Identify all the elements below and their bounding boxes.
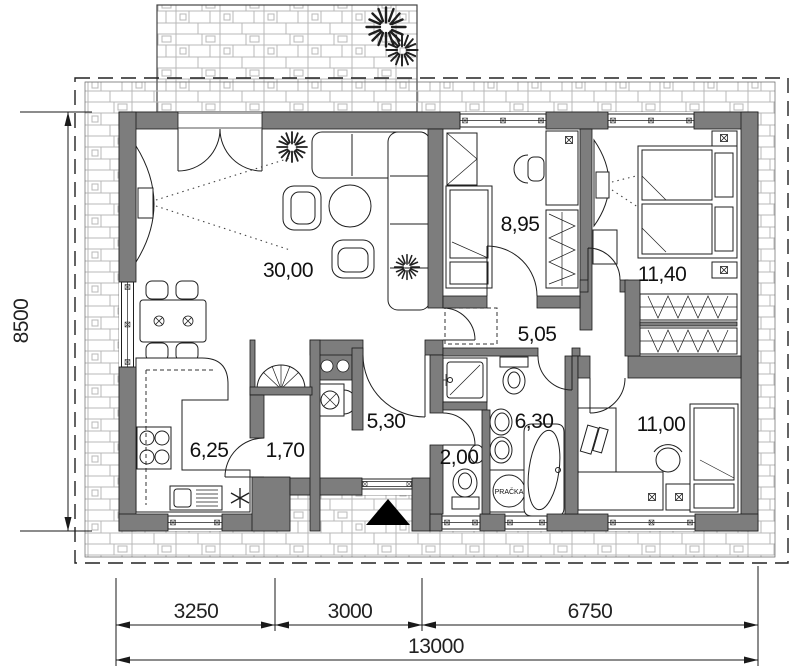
chair — [176, 281, 198, 299]
room-area-label-hallway: 5,05 — [518, 323, 557, 346]
bathtub — [524, 424, 564, 516]
room-area-label-entrance-hall: 5,30 — [367, 410, 406, 433]
dim-width-seg-1: 3250 — [174, 600, 219, 623]
room-area-label-bathroom: 6,30 — [515, 410, 554, 433]
dim-width-seg-2: 3000 — [328, 600, 373, 623]
toilet-tank — [452, 497, 479, 509]
dining-table — [140, 300, 206, 342]
window — [460, 114, 546, 127]
dim-width-total: 13000 — [408, 635, 464, 658]
desk — [546, 131, 578, 205]
window — [505, 516, 547, 529]
bookshelf — [447, 133, 477, 185]
dim-height-total: 8500 — [10, 299, 33, 344]
window — [608, 516, 695, 529]
tv-icon — [596, 172, 609, 198]
floor-plan: PRAČKA — [0, 0, 800, 669]
dim-width-seg-3: 6750 — [568, 600, 613, 623]
room-area-label-bedroom-master: 11,40 — [638, 263, 687, 286]
washing-machine-label: PRAČKA — [495, 487, 524, 496]
sofa-right — [388, 132, 430, 310]
bed-double — [638, 146, 737, 258]
room-area-label-wc: 2,00 — [440, 446, 479, 469]
room-area-label-bedroom-right: 11,00 — [637, 413, 686, 436]
chair — [146, 281, 168, 299]
window — [122, 282, 134, 367]
window — [608, 114, 694, 127]
bed-single — [446, 186, 492, 288]
desk-return — [578, 472, 663, 510]
bed-single — [690, 404, 738, 512]
tv-icon — [138, 188, 153, 218]
room-area-label-living: 30,00 — [263, 259, 313, 282]
desk-chair — [656, 448, 680, 472]
window — [442, 516, 480, 529]
coffee-table — [329, 185, 371, 227]
room-area-label-kitchen: 6,25 — [190, 439, 229, 462]
room-area-label-pantry: 1,70 — [266, 439, 305, 462]
dresser — [593, 230, 617, 264]
toilet-tank — [500, 357, 528, 367]
room-area-label-bedroom-top: 8,95 — [501, 213, 540, 236]
window — [168, 516, 222, 529]
